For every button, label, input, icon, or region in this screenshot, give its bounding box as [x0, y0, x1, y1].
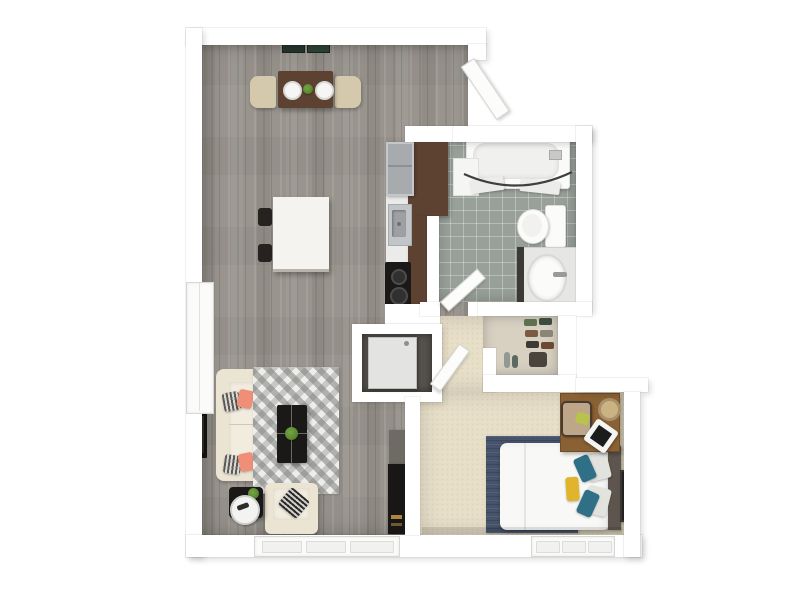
shoe-pair [540, 330, 553, 337]
stacked-washer [368, 337, 417, 389]
vanity-edge [517, 247, 524, 305]
place-setting [283, 81, 302, 100]
island-stool [258, 244, 272, 262]
vanity-faucet [553, 272, 567, 277]
bed-fold [524, 443, 526, 530]
kitchen-faucet [397, 222, 401, 226]
dining-chair-right [335, 76, 361, 108]
media-cabinet-accent [391, 515, 402, 519]
window-pane [350, 541, 394, 553]
shoe-pair [524, 319, 537, 326]
basket [598, 398, 621, 421]
dining-chair-left [250, 76, 276, 108]
wall-exterior-fin [576, 378, 648, 392]
shoe-pair [526, 341, 539, 348]
media-cabinet-accent [391, 523, 402, 526]
wall-bathroom-top [452, 126, 592, 142]
window-pane [262, 541, 302, 553]
wall-bedroom-right [624, 392, 640, 557]
refrigerator-divider [388, 165, 412, 167]
window-pane [588, 541, 612, 553]
kitchen-island [273, 197, 329, 272]
window-mullion [199, 283, 200, 411]
island-stool [258, 208, 272, 226]
vanity-sink [527, 254, 567, 302]
wall-bath-divider-b [478, 302, 592, 316]
wall-bathroom-right [576, 126, 592, 312]
shoe-pair [539, 318, 552, 325]
window-pane [536, 541, 560, 553]
centerpiece-plant [303, 84, 313, 94]
wall-closet-right [558, 316, 576, 380]
wall-entry-stub [468, 44, 486, 60]
window-pane [562, 541, 586, 553]
bed-pillow-yellow [565, 477, 580, 502]
living-left-window [186, 282, 214, 414]
shoe-pair [541, 342, 554, 349]
shoe-pair [525, 330, 538, 337]
toilet-seat [522, 214, 542, 237]
bedroom-floor-shadow [422, 527, 622, 534]
wall-closet-bottom [483, 375, 576, 392]
place-setting [315, 81, 334, 100]
window-pane [306, 541, 346, 553]
wall-living-bedroom [405, 397, 420, 535]
refrigerator [386, 142, 414, 196]
cooktop-burner [391, 269, 407, 285]
wall-bath-left-strip [427, 216, 439, 302]
wall-kitchen-top [405, 126, 452, 142]
bedroom-bottom-window [531, 536, 615, 557]
bottle [504, 352, 510, 368]
washer-knob [404, 341, 409, 346]
living-bottom-window [254, 536, 400, 557]
curved-shower-rod [462, 164, 574, 196]
floor-plan [0, 0, 800, 600]
serving-tray [230, 495, 260, 525]
bathtub-faucet [549, 150, 562, 160]
bottle [512, 355, 518, 368]
storage-pile [529, 352, 547, 367]
media-cabinet-top [389, 430, 405, 466]
kitchen-counter-upper [408, 140, 448, 216]
cooktop-burner [390, 287, 408, 305]
wall-bath-divider-a [420, 302, 440, 316]
coffee-table-plant [285, 427, 298, 440]
wall-top [186, 28, 486, 45]
entry-door [461, 58, 510, 120]
